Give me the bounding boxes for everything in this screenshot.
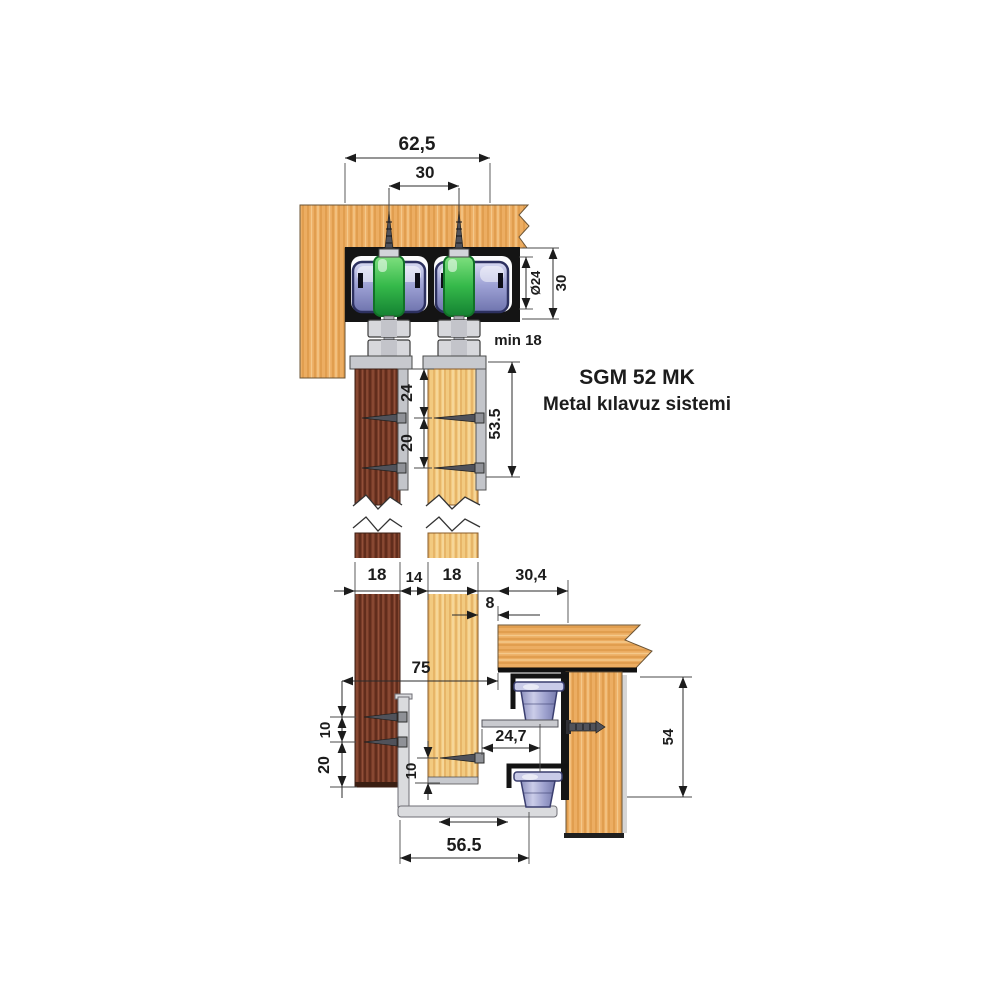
dim-door-clearance-label: 10 [403,763,420,780]
dim-beam-offset-label: 30,4 [515,567,546,584]
dim-roller-spacing-label: 30 [416,163,435,182]
dim-guide-height-label: 54 [660,728,677,745]
wheel-slot [415,273,420,288]
dim-min-clearance-label: min 18 [494,332,542,349]
wheel-slot [358,273,363,288]
screw-head [475,413,484,423]
product-subtitle: Metal kılavuz sistemi [543,394,731,415]
nut-facet [451,340,467,357]
floor-guide-bottom [509,766,568,807]
green-wheel-gloss [378,259,387,272]
dim-profile-width: 56.5 [400,812,529,864]
dim-beam-gap-label: 8 [486,595,495,612]
guide-base-plate [482,720,558,727]
guide-bottom-flange [514,772,562,781]
screw-head [475,463,484,473]
dim-guide-offset-label: 24,7 [495,728,526,745]
dim-plate-height: 53.5 [486,362,520,477]
screw-head [475,753,484,763]
sliding-door-system-diagram: 62,5 30 Ø24 30 min 18 2 [0,0,1000,1000]
screw-head [398,712,407,722]
green-wheel-gloss [448,259,457,272]
technical-drawing-page: 62,5 30 Ø24 30 min 18 2 [0,0,1000,1000]
wheel-slot [498,273,503,288]
screw-head [398,737,407,747]
nut-facet [381,340,397,357]
roller-cap-left [379,249,399,257]
dim-track-height-label: 30 [553,275,570,292]
dim-screw-gap-upper-label: 10 [317,722,334,739]
dim-door-left-label: 18 [368,565,387,584]
post-bottom-edge [564,833,624,838]
floor-guide-top [482,676,568,727]
upper-beam [498,625,652,670]
dim-guide-height: 54 [627,677,692,797]
dim-door-right-label: 18 [443,565,462,584]
dim-roller-diameter-label: Ø24 [528,270,543,295]
guide-top-flange [514,682,564,691]
side-post [566,672,622,835]
product-title: SGM 52 MK [579,366,695,389]
title-block: SGM 52 MK Metal kılavuz sistemi [543,366,731,415]
post-shadow [622,675,627,833]
nut-facet [451,320,467,337]
dim-roller-diameter: Ø24 [519,257,543,309]
roller-cap-right [449,249,469,257]
dim-door-gap-label: 14 [406,569,423,586]
door-light-top-bracket [423,356,486,369]
door-dark-bottom-edge [355,782,400,787]
guide-top-body [521,691,557,722]
screw-head [397,463,406,473]
door-light-upper [428,369,478,505]
guide-gloss [522,774,538,780]
dim-bottom-screws: 10 20 [316,681,357,798]
dim-screw-spacing-top-label: 20 [399,434,416,452]
dim-screw-gap-lower-label: 20 [316,756,333,774]
dim-total-width-label: 62,5 [399,134,436,155]
dim-floor-offset-label: 75 [412,658,431,677]
nut-facet [381,320,397,337]
guide-bottom-body [521,781,555,807]
dim-plate-height-label: 53.5 [487,408,504,439]
door-dark-top-bracket [350,356,412,369]
dim-roller-spacing: 30 [389,163,459,211]
door-dark-upper [355,369,400,505]
guide-gloss [523,684,539,690]
screw-head [397,413,406,423]
dim-screw-offset-top-label: 24 [399,384,416,402]
dim-profile-width-label: 56.5 [446,835,481,855]
